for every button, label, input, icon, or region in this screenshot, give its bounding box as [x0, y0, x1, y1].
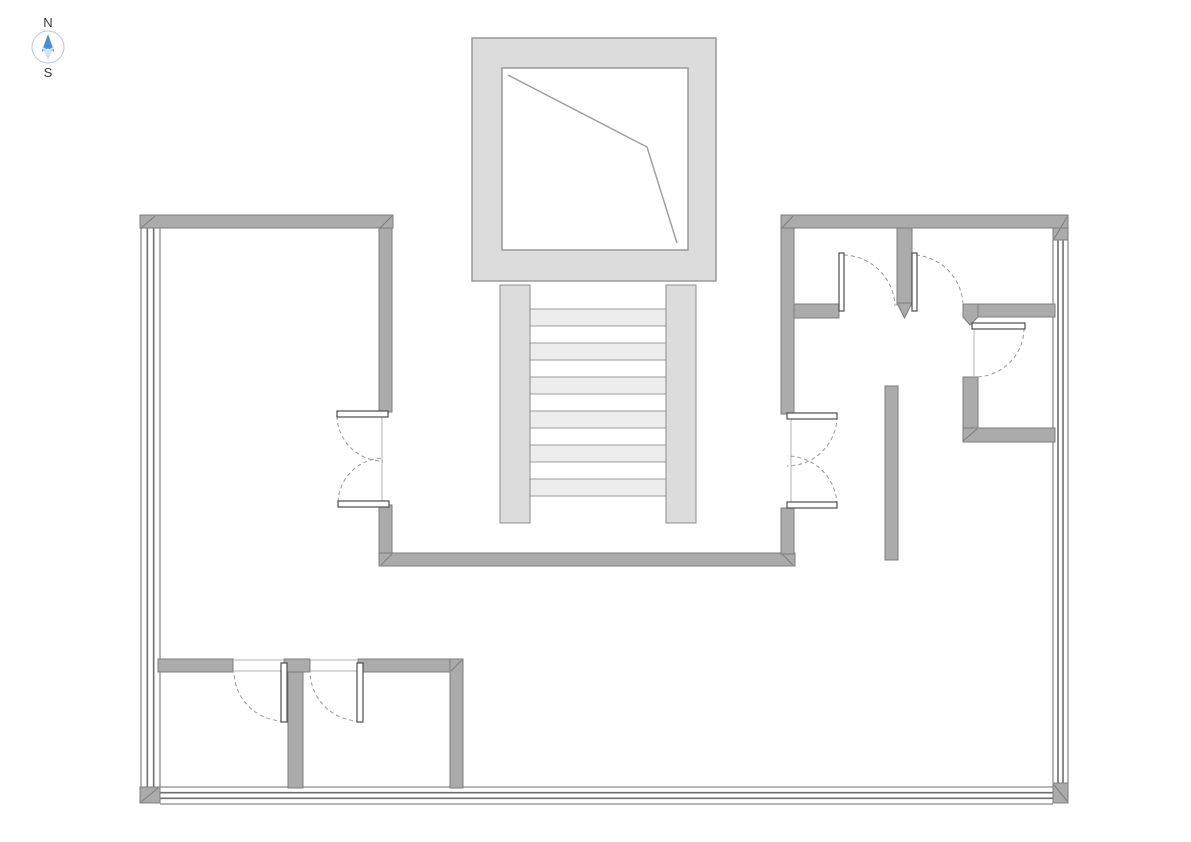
compass-south-label: S: [44, 65, 53, 80]
wall-segment: [885, 386, 898, 560]
door-leaf: [787, 502, 837, 508]
door-swing-arc: [787, 416, 837, 466]
wall-segment: [781, 215, 1068, 228]
stair-rail: [666, 285, 696, 523]
wall-segment: [379, 228, 392, 412]
wall-segment: [379, 505, 392, 554]
door-leaf: [787, 413, 837, 419]
window-wall: [141, 228, 160, 788]
wall-end-cap: [897, 303, 912, 318]
wall-segment: [158, 659, 233, 672]
door-swing-arc: [916, 255, 963, 303]
door-leaf: [281, 663, 287, 722]
wall-segment: [450, 659, 463, 788]
door-swing-arc: [787, 456, 837, 505]
stair-tread: [530, 309, 666, 326]
door-swing-arc: [337, 416, 383, 461]
wall-segment: [794, 304, 839, 318]
stair-tread: [530, 326, 666, 343]
door-swing-arc: [976, 328, 1024, 377]
wall-segment: [781, 508, 794, 554]
wall-segment: [379, 553, 795, 566]
stair-tread: [530, 445, 666, 462]
plan-layer: [140, 38, 1068, 804]
wall-segment: [358, 659, 463, 672]
door-leaf: [337, 411, 388, 417]
wall-segment: [963, 377, 978, 429]
wall-end-cap: [963, 304, 978, 325]
stair-tread: [530, 394, 666, 411]
stair-tread: [530, 343, 666, 360]
stair-rail: [500, 285, 530, 523]
door-leaf: [338, 501, 389, 507]
door-leaf: [912, 253, 917, 311]
stair-tread: [530, 411, 666, 428]
door-leaf: [839, 253, 844, 311]
door-leaf: [357, 663, 363, 722]
wall-segment: [140, 215, 393, 228]
window-wall: [160, 787, 1053, 804]
shaft-inner-box: [502, 68, 688, 250]
door-swing-arc: [310, 672, 360, 721]
door-swing-arc: [234, 672, 284, 721]
floorplan-page: N S: [0, 0, 1191, 842]
stair-tread: [530, 462, 666, 479]
wall-segment: [288, 672, 303, 788]
door-swing-arc: [844, 255, 895, 306]
compass-rose: N S: [32, 15, 64, 80]
floorplan-drawing: N S: [0, 0, 1191, 842]
wall-corner-block: [1053, 228, 1068, 240]
wall-segment: [781, 228, 794, 414]
wall-segment: [284, 659, 310, 672]
stair-tread: [530, 479, 666, 496]
compass-north-label: N: [43, 15, 52, 30]
wall-segment: [963, 428, 1055, 442]
wall-segment: [897, 228, 912, 305]
window-wall: [1053, 240, 1068, 783]
door-leaf: [972, 323, 1025, 329]
stair-tread: [530, 360, 666, 377]
stair-tread: [530, 377, 666, 394]
door-swing-arc: [338, 458, 383, 502]
stair-tread: [530, 428, 666, 445]
